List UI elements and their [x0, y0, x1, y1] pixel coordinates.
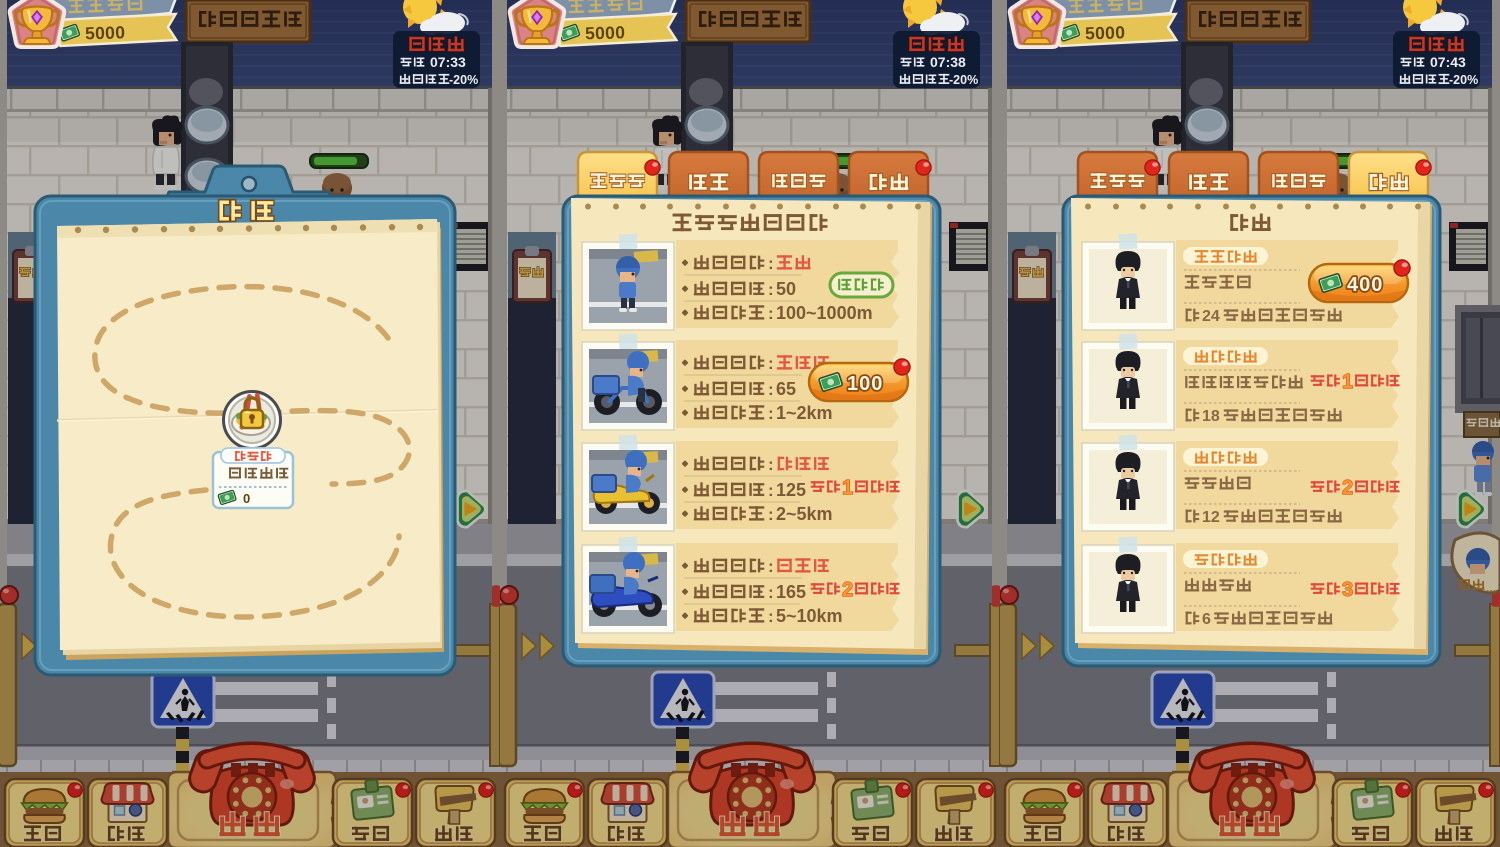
svg-text::: :	[768, 505, 774, 524]
svg-text:100: 100	[847, 373, 883, 395]
svg-text::: :	[768, 455, 774, 474]
svg-text:2: 2	[1342, 477, 1353, 499]
svg-text::: :	[768, 254, 774, 273]
svg-text:3: 3	[1342, 579, 1353, 601]
svg-text::: :	[768, 404, 774, 423]
svg-text:50: 50	[776, 279, 796, 299]
svg-text::: :	[768, 354, 774, 373]
svg-text:0: 0	[243, 491, 250, 506]
svg-text:65: 65	[776, 379, 796, 399]
svg-text:165: 165	[776, 582, 806, 602]
svg-text::: :	[768, 607, 774, 626]
svg-text::: :	[768, 280, 774, 299]
svg-text:5000: 5000	[585, 22, 626, 43]
svg-text::: :	[768, 583, 774, 602]
svg-text:2~5km: 2~5km	[776, 504, 833, 524]
svg-text:2: 2	[842, 579, 853, 601]
svg-text::: :	[768, 304, 774, 323]
svg-text:-20%: -20%	[1449, 73, 1478, 87]
svg-text:125: 125	[776, 480, 806, 500]
svg-text:1: 1	[1342, 371, 1353, 393]
svg-text:07:33: 07:33	[430, 54, 466, 70]
svg-text:5000: 5000	[1085, 22, 1126, 43]
svg-text:24: 24	[1202, 308, 1220, 325]
svg-text:18: 18	[1202, 408, 1220, 425]
svg-text:6: 6	[1202, 611, 1211, 628]
svg-text:5~10km: 5~10km	[776, 606, 843, 626]
svg-text:12: 12	[1202, 509, 1220, 526]
svg-text:-20%: -20%	[949, 73, 978, 87]
svg-text:-20%: -20%	[449, 73, 478, 87]
svg-text:07:38: 07:38	[930, 54, 966, 70]
svg-text:1: 1	[842, 477, 853, 499]
svg-text:100~1000m: 100~1000m	[776, 303, 873, 323]
svg-text:400: 400	[1347, 274, 1383, 296]
svg-text:1~2km: 1~2km	[776, 403, 833, 423]
svg-text::: :	[768, 557, 774, 576]
svg-text::: :	[768, 380, 774, 399]
svg-text:07:43: 07:43	[1430, 54, 1466, 70]
svg-text::: :	[768, 481, 774, 500]
svg-text:5000: 5000	[85, 22, 126, 43]
